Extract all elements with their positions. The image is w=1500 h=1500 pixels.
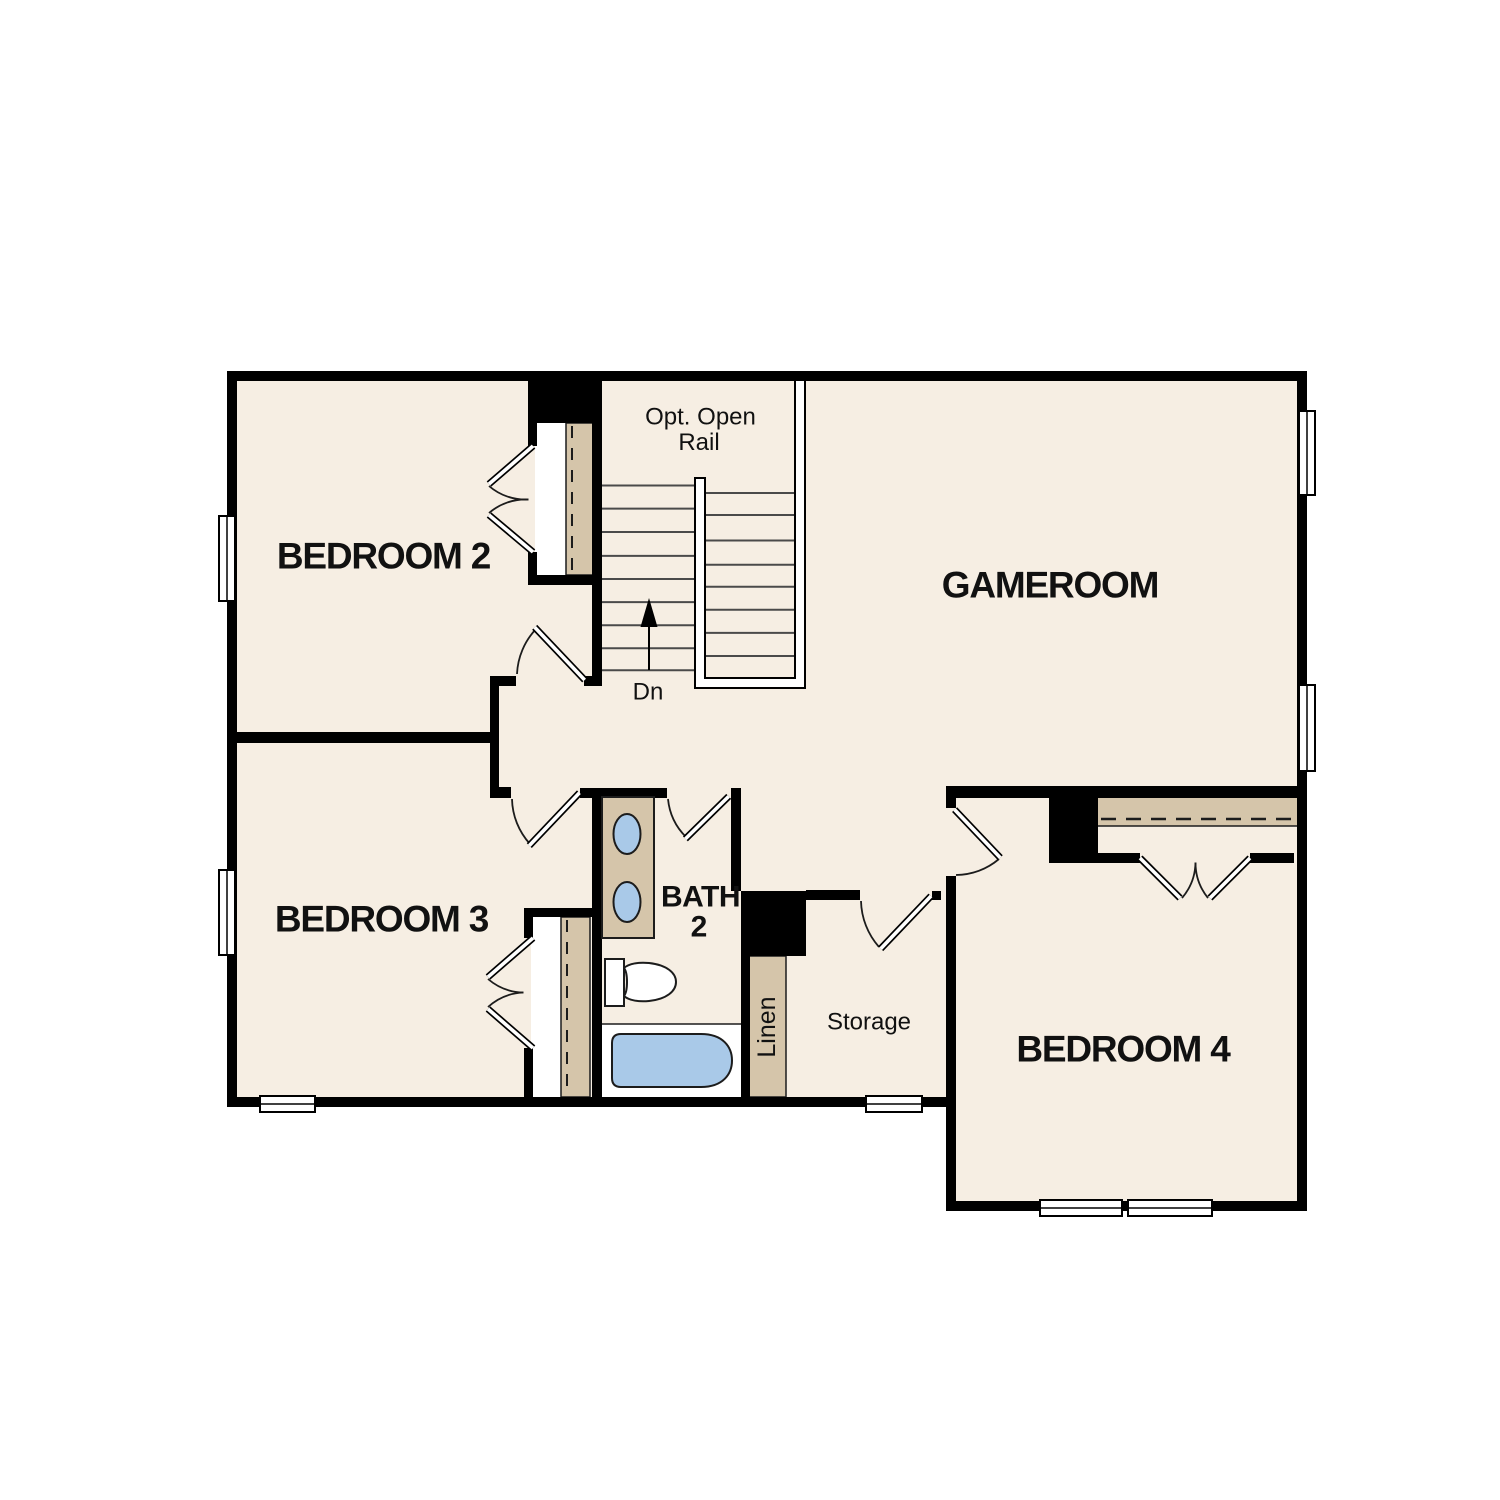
svg-text:BEDROOM 4: BEDROOM 4 — [1016, 1029, 1231, 1070]
svg-text:GAMEROOM: GAMEROOM — [942, 565, 1159, 606]
svg-text:BEDROOM 3: BEDROOM 3 — [275, 899, 489, 940]
svg-text:Opt. Open: Opt. Open — [645, 404, 756, 431]
svg-text:Dn: Dn — [633, 679, 664, 706]
svg-text:Linen: Linen — [753, 996, 781, 1057]
svg-text:Storage: Storage — [827, 1009, 911, 1036]
svg-text:Rail: Rail — [678, 429, 719, 456]
svg-text:BATH: BATH — [661, 881, 740, 914]
svg-text:BEDROOM 2: BEDROOM 2 — [277, 536, 491, 577]
svg-text:2: 2 — [691, 911, 708, 944]
